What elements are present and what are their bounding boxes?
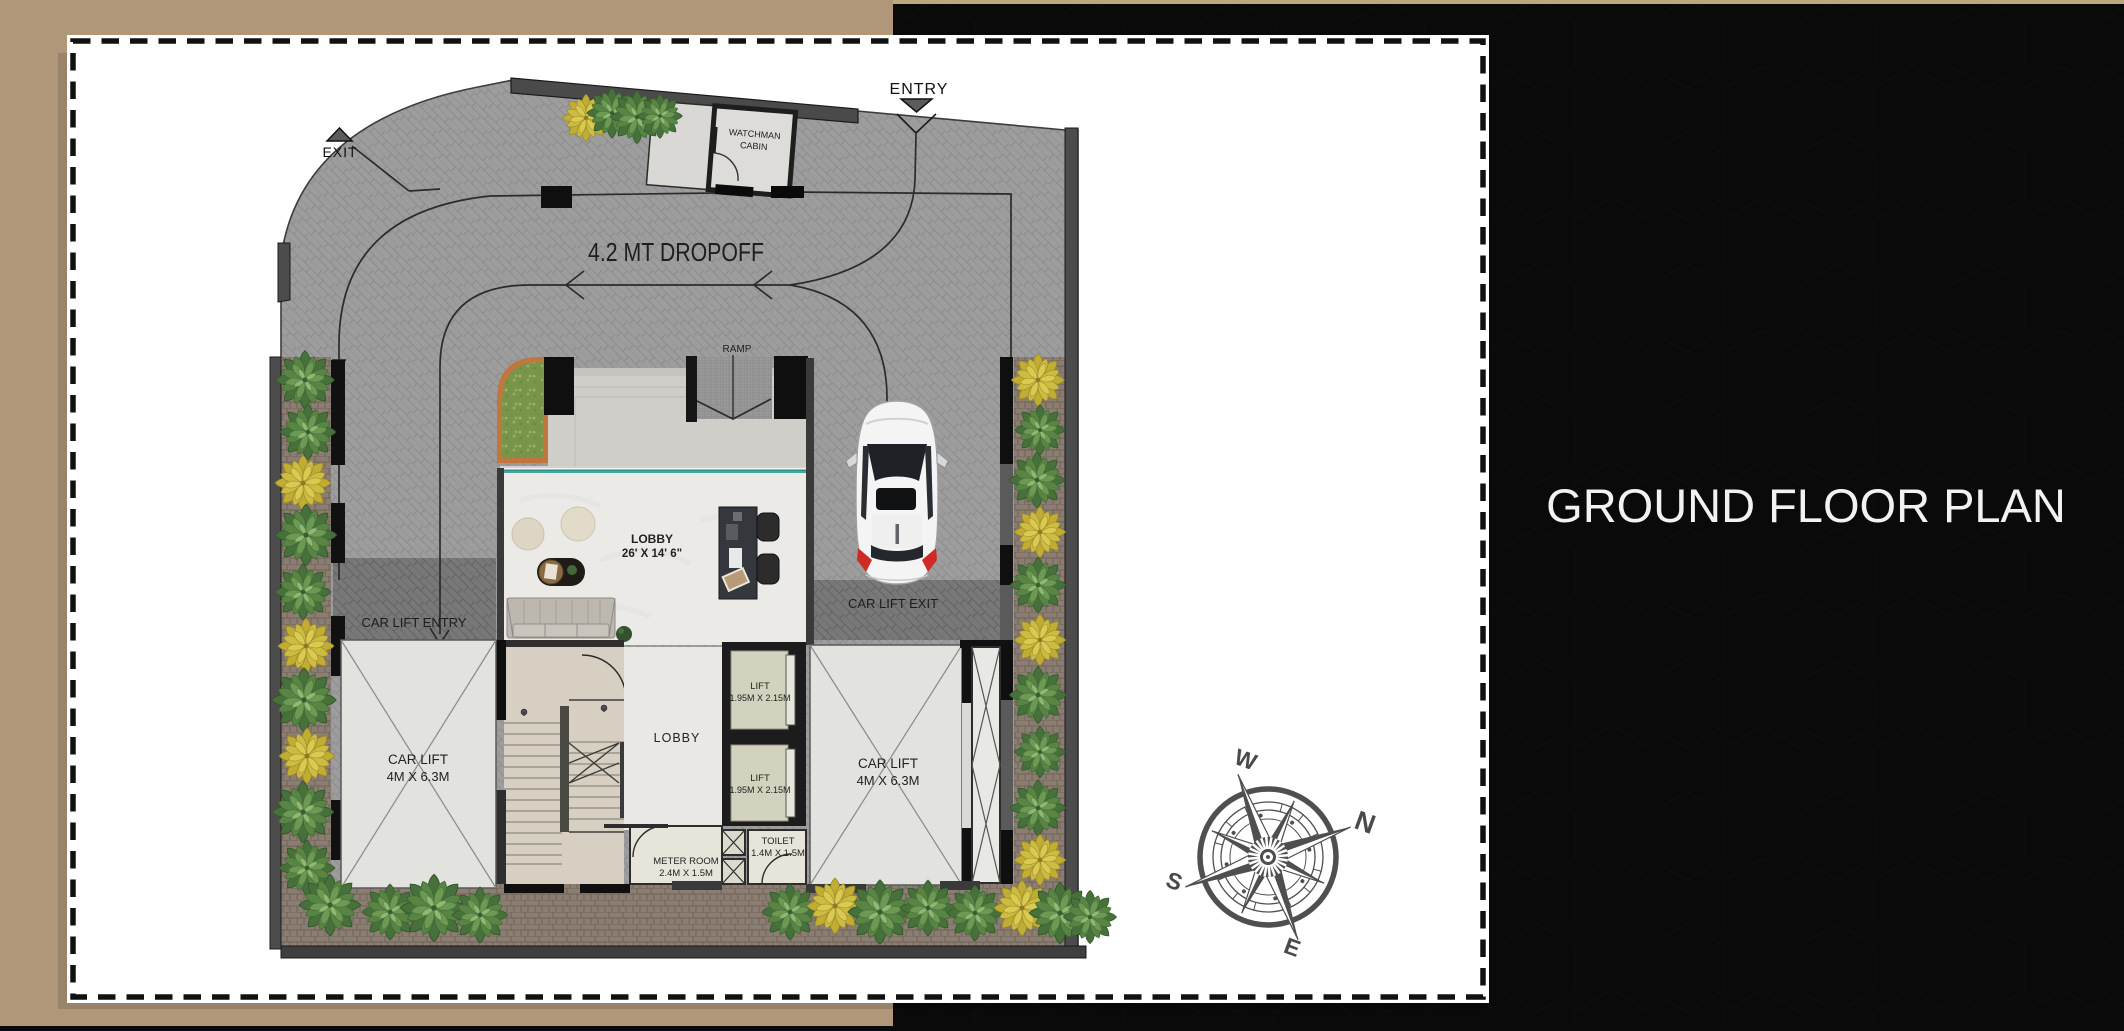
svg-text:4.2 MT DROPOFF: 4.2 MT DROPOFF <box>588 237 764 267</box>
svg-text:LOBBY: LOBBY <box>654 731 701 745</box>
svg-text:GROUND FLOOR PLAN: GROUND FLOOR PLAN <box>1546 479 2066 532</box>
svg-text:EXIT: EXIT <box>322 144 357 160</box>
svg-text:CAR LIFT: CAR LIFT <box>858 756 918 771</box>
svg-text:26' X 14' 6": 26' X 14' 6" <box>622 548 682 560</box>
svg-text:LIFT: LIFT <box>750 773 770 784</box>
svg-text:ENTRY: ENTRY <box>890 81 949 98</box>
svg-text:CAR LIFT ENTRY: CAR LIFT ENTRY <box>362 615 467 630</box>
svg-text:4M X 6.3M: 4M X 6.3M <box>387 769 450 784</box>
svg-text:1.95M X 2.15M: 1.95M X 2.15M <box>729 693 790 703</box>
svg-text:CAR LIFT EXIT: CAR LIFT EXIT <box>848 596 938 611</box>
svg-text:RAMP: RAMP <box>723 344 752 355</box>
svg-text:TOILET: TOILET <box>761 836 794 847</box>
svg-text:1.4M X 1.5M: 1.4M X 1.5M <box>751 848 805 859</box>
svg-text:LIFT: LIFT <box>750 681 770 692</box>
svg-text:2.4M X 1.5M: 2.4M X 1.5M <box>659 868 713 879</box>
svg-text:4M X 6.3M: 4M X 6.3M <box>857 773 920 788</box>
svg-text:METER ROOM: METER ROOM <box>653 856 719 867</box>
svg-text:1.95M X 2.15M: 1.95M X 2.15M <box>729 785 790 795</box>
svg-text:LOBBY: LOBBY <box>631 532 673 546</box>
svg-text:CAR LIFT: CAR LIFT <box>388 752 448 767</box>
